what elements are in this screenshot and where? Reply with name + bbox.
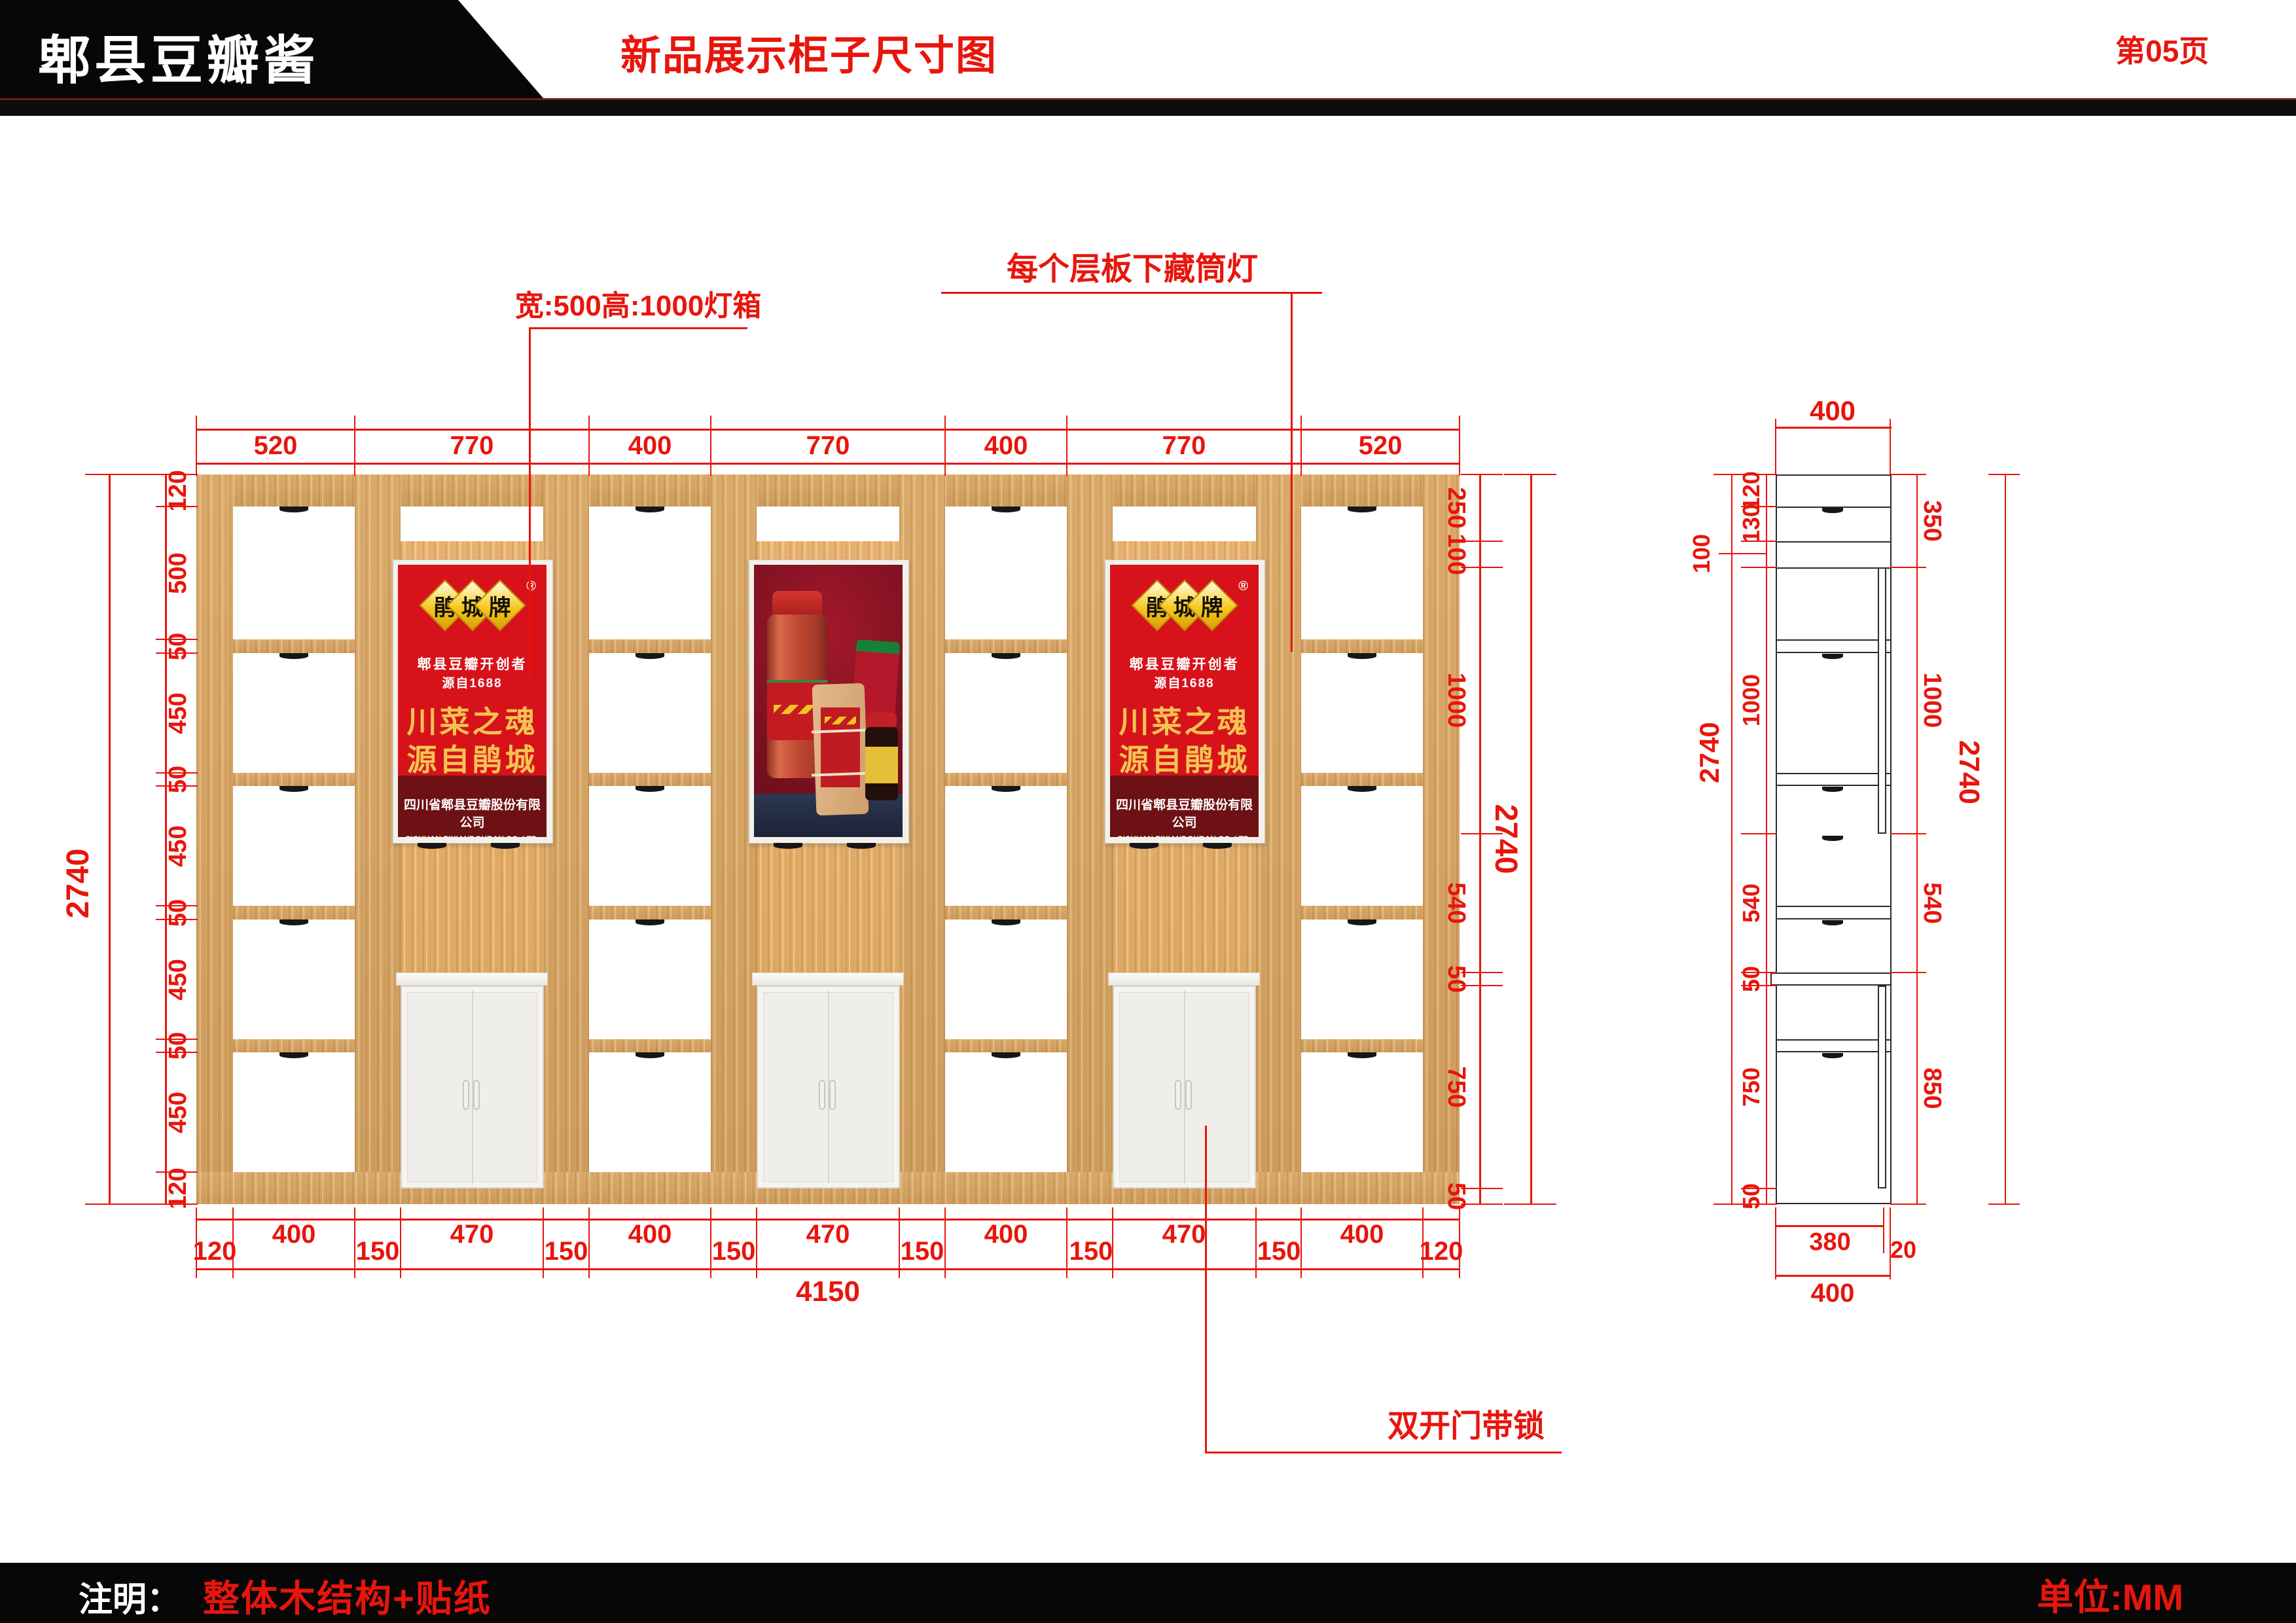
downlight-icon [1348, 919, 1376, 925]
dim-value: 450 [166, 959, 190, 1000]
downlight-icon [1822, 1053, 1843, 1058]
shelf [945, 906, 1067, 919]
door-handle [1175, 1080, 1181, 1110]
dim-value: 400 [1340, 1221, 1384, 1247]
dim-line [1776, 1275, 1891, 1277]
door-handle [819, 1080, 825, 1110]
dim-value: 470 [806, 1221, 850, 1247]
downlight-icon [1203, 843, 1232, 849]
dim-value: 120 [1420, 1238, 1463, 1264]
dim-value: 250 [1444, 487, 1469, 528]
downlight-icon [992, 786, 1020, 792]
downlight-icon [1822, 654, 1843, 659]
shelf [589, 1039, 711, 1052]
dim-value: 150 [1257, 1238, 1301, 1264]
downlight-icon [1348, 786, 1376, 792]
dim-value: 520 [1359, 433, 1403, 459]
brand-logo: 郫县豆瓣酱 [38, 18, 319, 94]
overall-height: 2740 [63, 849, 94, 919]
downlight-icon [636, 919, 664, 925]
note-label: 注明： [79, 1572, 181, 1621]
lightbox-poster: 鹃 城 牌 ® 郫县豆瓣开创者 源自1688 川菜之魂 源自鹃城 四川省郫县豆瓣… [1110, 565, 1259, 837]
dim-value: 400 [1810, 397, 1856, 425]
poster-company-band: 四川省郫县豆瓣股份有限公司 SICHUAN PIXIANDOUBAN CO.,L… [398, 776, 547, 837]
leader-line [529, 327, 531, 677]
dim-value: 450 [166, 825, 190, 866]
dim-line [2005, 474, 2006, 1204]
dim-value: 770 [806, 433, 850, 459]
downlight-icon [1348, 507, 1376, 512]
dim-value: 50 [1740, 1183, 1763, 1209]
registered-mark: ® [526, 579, 536, 594]
downlight-icon [636, 507, 664, 512]
door-handle [463, 1080, 469, 1110]
dim-value: 850 [1920, 1067, 1945, 1109]
bay-shelf [1108, 972, 1260, 986]
poster-subtitle: 源自1688 [1110, 673, 1259, 691]
dim-value: 1000 [1444, 673, 1469, 728]
dim-value: 380 [1809, 1230, 1850, 1255]
company-en: SICHUAN PIXIANDOUBAN CO.,LTD. [398, 834, 547, 837]
downlight-icon [1348, 653, 1376, 659]
downlight-icon [279, 919, 308, 925]
dim-value: 150 [1069, 1238, 1113, 1264]
shelf [233, 906, 355, 919]
dim-value: 540 [1444, 882, 1469, 923]
shelf [233, 773, 355, 786]
dim-line [1776, 1225, 1884, 1227]
downlight-callout: 每个层板下藏筒灯 [1007, 254, 1258, 285]
dim-value: 50 [1444, 965, 1469, 993]
dim-value: 20 [1890, 1238, 1916, 1262]
sauce-jar-label [865, 747, 898, 783]
shelf [589, 773, 711, 786]
overall-height: 2740 [1696, 722, 1723, 783]
shelf [1301, 1039, 1423, 1052]
overall-width: 400 [1811, 1280, 1855, 1306]
side-lightbox-panel [1878, 567, 1886, 834]
shelf [945, 1039, 1067, 1052]
shelf [589, 906, 711, 919]
dim-value: 540 [1740, 883, 1763, 923]
dim-value: 50 [166, 899, 190, 927]
poster-subtitle: 郫县豆瓣开创者 [398, 654, 547, 673]
downlight-icon [992, 1052, 1020, 1058]
dim-value: 150 [545, 1238, 588, 1264]
dim-value: 400 [984, 433, 1028, 459]
dim-value: 50 [1444, 1183, 1469, 1210]
poster-subtitle: 源自1688 [398, 673, 547, 691]
page-title: 新品展示柜子尺寸图 [620, 22, 997, 81]
drawing-sheet: 郫县豆瓣酱 新品展示柜子尺寸图 第05页 [0, 0, 2296, 1623]
shelf [1301, 773, 1423, 786]
leader-line [1205, 1126, 1207, 1453]
dim-line [1731, 474, 1732, 1204]
downlight-icon [636, 1052, 664, 1058]
dim-line [196, 463, 1460, 465]
dim-value: 450 [166, 1092, 190, 1133]
downlight-icon [1348, 1052, 1376, 1058]
door-handle [473, 1080, 480, 1110]
dim-value: 750 [1740, 1067, 1763, 1107]
dim-value: 540 [1920, 882, 1945, 923]
leader-line [1205, 1452, 1562, 1454]
leader-line [529, 327, 747, 329]
dim-line [1479, 474, 1481, 1204]
shelf [945, 773, 1067, 786]
poster-slogan: 源自鹃城 [398, 736, 547, 779]
shelf [233, 639, 355, 653]
dim-value: 100 [1690, 534, 1713, 573]
dim-value: 400 [628, 433, 672, 459]
downlight-icon [1130, 843, 1158, 849]
brand-diamonds: 鹃 城 牌 [1110, 587, 1259, 624]
poster-company-band: 四川省郫县豆瓣股份有限公司 SICHUAN PIXIANDOUBAN CO.,L… [1110, 776, 1259, 837]
downlight-icon [279, 653, 308, 659]
dim-value: 470 [450, 1221, 494, 1247]
left-post [196, 474, 233, 1204]
downlight-icon [1822, 508, 1843, 513]
dim-value: 400 [272, 1221, 316, 1247]
overall-height: 2740 [1954, 740, 1983, 804]
dim-value: 500 [166, 552, 190, 594]
overall-height: 2740 [1490, 804, 1521, 874]
dim-line [196, 1268, 1460, 1270]
side-bay-shelf [1770, 972, 1892, 986]
dim-value: 400 [628, 1221, 672, 1247]
dim-value: 450 [166, 692, 190, 734]
dim-line [1916, 474, 1918, 1204]
dim-value: 1000 [1740, 674, 1763, 726]
jar-cap [772, 591, 822, 617]
shelf [945, 639, 1067, 653]
unit-label: 单位:MM [2037, 1568, 2183, 1621]
company-en: SICHUAN PIXIANDOUBAN CO.,LTD. [1110, 834, 1259, 837]
poster-slogan: 川菜之魂 [398, 698, 547, 741]
dim-value: 120 [193, 1238, 237, 1264]
dim-line [1776, 427, 1892, 429]
dim-value: 50 [166, 766, 190, 793]
header-divider [0, 98, 2296, 116]
dim-line [196, 429, 1460, 431]
downlight-icon [992, 507, 1020, 512]
door-handle [829, 1080, 836, 1110]
dim-value: 50 [166, 633, 190, 660]
page-number: 第05页 [2115, 27, 2209, 71]
shelf [1301, 639, 1423, 653]
diamond-icon: 牌 [1186, 579, 1238, 631]
downlight-icon [992, 653, 1020, 659]
lightbox-callout: 宽:500高:1000灯箱 [515, 292, 762, 321]
dim-value: 470 [1162, 1221, 1206, 1247]
downlight-icon [418, 843, 446, 849]
dim-value: 750 [1444, 1066, 1469, 1107]
shelf [233, 1039, 355, 1052]
bay-shelf [396, 972, 548, 986]
shelf [589, 639, 711, 653]
dim-value: 150 [901, 1238, 944, 1264]
sauce-jar-cap [867, 713, 897, 728]
leader-line [1291, 292, 1293, 652]
dim-value: 770 [1162, 433, 1206, 459]
brand-diamonds: 鹃 城 牌 [398, 587, 547, 624]
bay-shelf [752, 972, 904, 986]
dim-value: 400 [984, 1221, 1028, 1247]
poster-slogan: 源自鹃城 [1110, 736, 1259, 779]
downlight-icon [279, 1052, 308, 1058]
dim-line [1530, 474, 1532, 1204]
leader-line [941, 292, 1322, 294]
shelf [1301, 906, 1423, 919]
dim-value: 120 [166, 1168, 190, 1209]
dim-value: 120 [166, 470, 190, 511]
company-cn: 四川省郫县豆瓣股份有限公司 [1110, 795, 1259, 830]
door-handle [1185, 1080, 1192, 1110]
diamond-icon: 牌 [474, 579, 526, 631]
dim-value: 50 [1740, 966, 1763, 992]
poster-subtitle: 郫县豆瓣开创者 [1110, 654, 1259, 673]
dim-value: 1000 [1920, 673, 1945, 728]
lightbox-poster: 鹃 城 牌 ® 郫县豆瓣开创者 源自1688 川菜之魂 源自鹃城 四川省郫县豆瓣… [398, 565, 547, 837]
downlight-icon [1822, 920, 1843, 925]
label-diamond-strip [825, 717, 856, 724]
downlight-icon [847, 843, 876, 849]
downlight-icon [1822, 787, 1843, 792]
dim-line [109, 474, 111, 1204]
dim-value: 150 [356, 1238, 400, 1264]
dim-line [1766, 474, 1767, 1204]
company-cn: 四川省郫县豆瓣股份有限公司 [398, 795, 547, 830]
dim-value: 520 [254, 433, 298, 459]
downlight-icon [1822, 836, 1843, 841]
poster-slogan: 川菜之魂 [1110, 698, 1259, 741]
downlight-icon [279, 786, 308, 792]
downlight-icon [491, 843, 520, 849]
overall-width: 4150 [796, 1277, 860, 1306]
downlight-icon [279, 507, 308, 512]
product-photo [754, 565, 903, 837]
dim-value: 100 [1444, 533, 1469, 575]
dim-value: 150 [712, 1238, 756, 1264]
dim-value: 770 [450, 433, 494, 459]
downlight-icon [636, 786, 664, 792]
downlight-icon [636, 653, 664, 659]
dim-value: 350 [1920, 500, 1945, 541]
door-callout: 双开门带锁 [1388, 1411, 1545, 1442]
downlight-icon [774, 843, 802, 849]
note-value: 整体木结构+贴纸 [203, 1569, 492, 1622]
downlight-icon [992, 919, 1020, 925]
dim-value: 130 [1740, 504, 1763, 543]
dim-value: 50 [166, 1032, 190, 1060]
side-door-panel [1878, 986, 1886, 1188]
registered-mark: ® [1238, 579, 1248, 594]
